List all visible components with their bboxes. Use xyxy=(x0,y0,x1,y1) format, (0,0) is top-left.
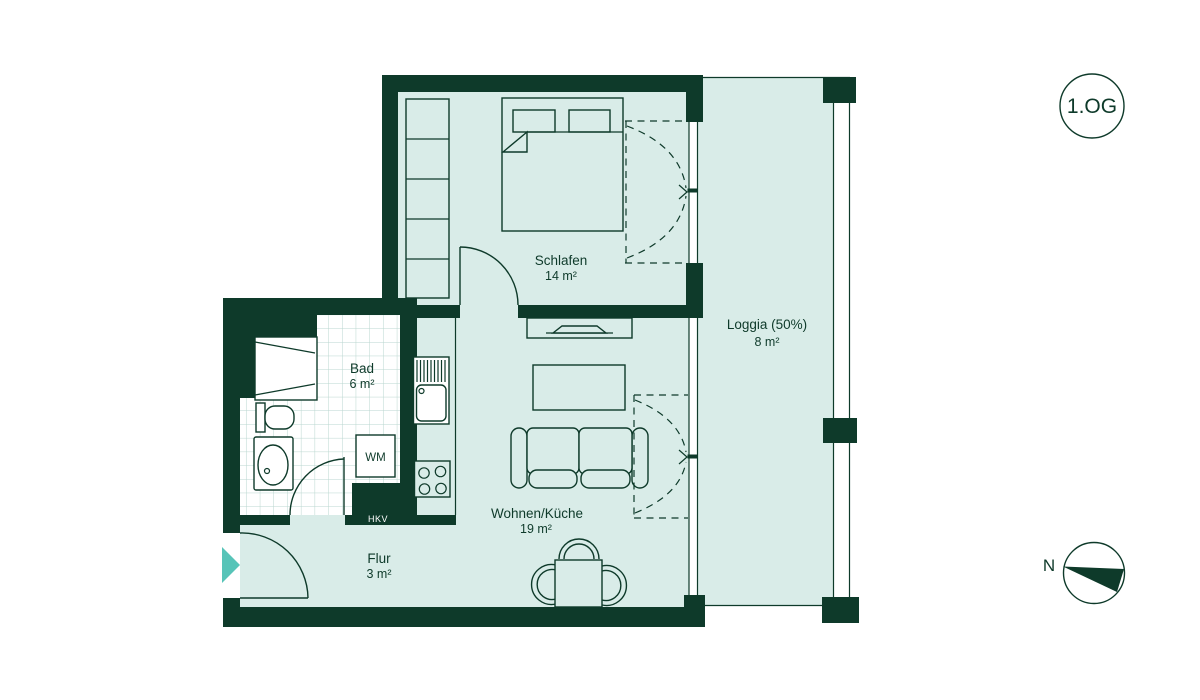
wall-entry-jamb-bottom xyxy=(223,598,240,608)
wall-glass-bottom-block xyxy=(684,595,705,609)
tv-sideboard-icon xyxy=(527,318,632,338)
glass-mullion-tick-1 xyxy=(688,189,698,193)
label-wohnen: Wohnen/Küche xyxy=(491,506,583,521)
wall-entry-jamb-top xyxy=(223,525,240,533)
wall-pillar-top xyxy=(686,92,703,122)
label-flur-area: 3 m² xyxy=(367,567,392,581)
pillow-left xyxy=(513,110,555,132)
schlafen-door-opening xyxy=(460,305,518,318)
toilet-icon xyxy=(256,403,294,432)
pillow-right xyxy=(569,110,610,132)
washing-machine-icon: WM xyxy=(356,435,395,477)
floorplan-page: WM xyxy=(0,0,1200,700)
compass-needle-icon xyxy=(1063,567,1124,593)
wall-schlafen-left xyxy=(382,92,398,305)
entrance-arrow-icon xyxy=(222,547,240,583)
bathroom: WM xyxy=(240,315,400,525)
compass-north-label: N xyxy=(1043,556,1055,575)
loggia-pillar-mid xyxy=(823,418,857,443)
wall-top xyxy=(382,75,703,92)
wall-schlafen-bottom-left xyxy=(398,305,460,318)
washing-machine-label: WM xyxy=(365,452,385,464)
bad-door-opening xyxy=(290,515,345,525)
floor-badge: 1.OG xyxy=(1060,74,1124,138)
label-schlafen-area: 14 m² xyxy=(545,269,577,283)
label-hkv: HKV xyxy=(368,514,388,524)
compass: N xyxy=(1043,543,1125,604)
loggia-pillar-top xyxy=(823,77,856,103)
glass-mullion-tick-2 xyxy=(688,455,698,459)
label-bad: Bad xyxy=(350,361,374,376)
glass-facade xyxy=(688,122,698,595)
label-loggia-area: 8 m² xyxy=(755,335,780,349)
bed-icon xyxy=(502,98,623,231)
wall-pillar-mid xyxy=(686,263,703,318)
label-bad-area: 6 m² xyxy=(350,377,375,391)
floor-badge-label: 1.OG xyxy=(1067,95,1117,118)
wall-kitchen-bottom xyxy=(413,515,456,525)
shower-icon xyxy=(255,337,317,400)
washbasin-icon xyxy=(254,437,293,490)
dining-table xyxy=(555,560,602,607)
label-loggia: Loggia (50%) xyxy=(727,317,807,332)
floorplan-drawing: WM xyxy=(0,0,1200,700)
wall-bottom xyxy=(223,607,705,627)
loggia-pillar-bottom xyxy=(822,597,859,623)
label-flur: Flur xyxy=(367,551,391,566)
wardrobe-icon xyxy=(406,99,449,298)
label-schlafen: Schlafen xyxy=(535,253,588,268)
stove-icon xyxy=(415,461,451,497)
label-wohnen-area: 19 m² xyxy=(520,522,552,536)
kitchen-sink-icon xyxy=(414,357,450,424)
wall-schlafen-bottom-right xyxy=(518,305,686,318)
coffee-table-icon xyxy=(533,365,625,410)
tv-icon xyxy=(553,326,606,333)
